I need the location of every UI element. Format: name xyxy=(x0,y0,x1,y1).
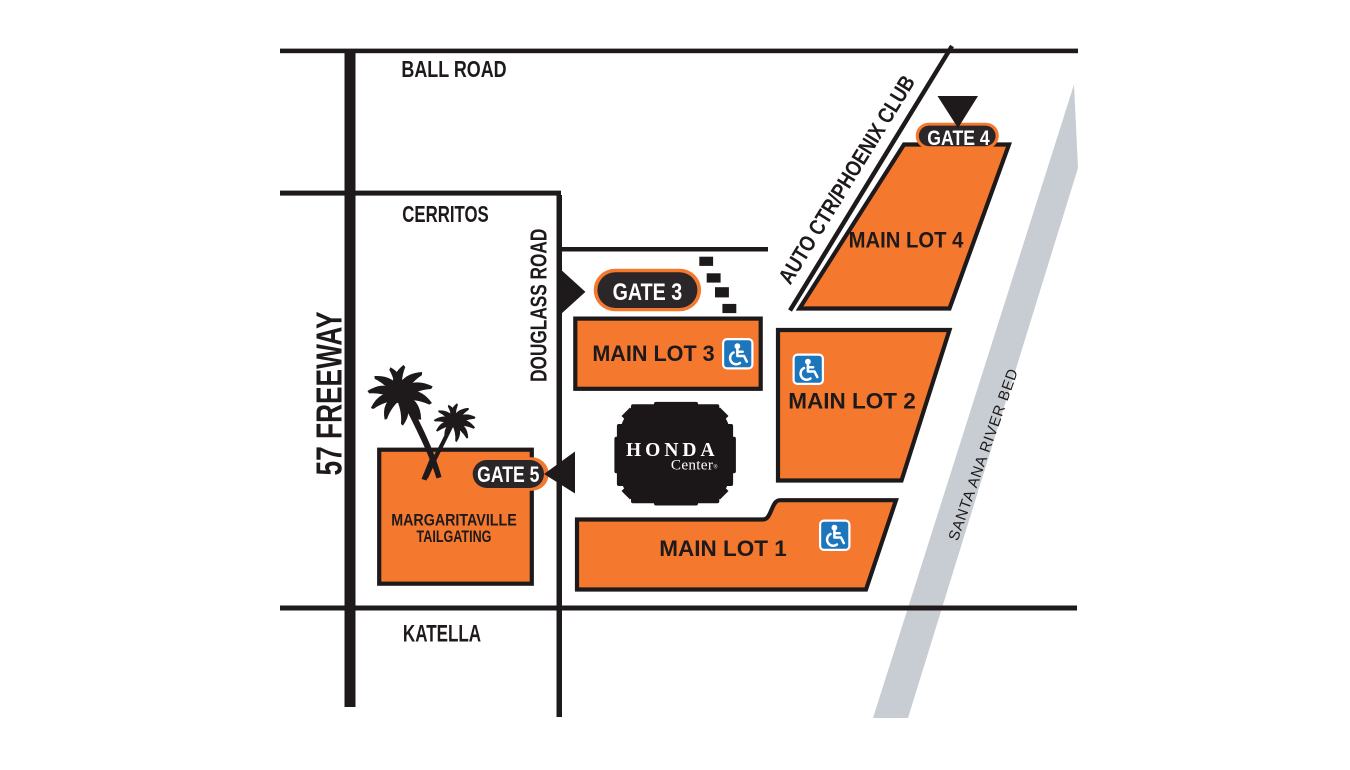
svg-text:TAILGATING: TAILGATING xyxy=(417,527,492,546)
svg-text:GATE 5: GATE 5 xyxy=(477,463,539,487)
svg-text:BALL ROAD: BALL ROAD xyxy=(401,57,506,83)
svg-text:GATE 4: GATE 4 xyxy=(927,127,990,151)
svg-text:KATELLA: KATELLA xyxy=(403,621,481,648)
svg-text:MAIN LOT 1: MAIN LOT 1 xyxy=(659,536,787,561)
svg-text:57 FREEWAY: 57 FREEWAY xyxy=(308,312,349,476)
svg-text:MAIN LOT 4: MAIN LOT 4 xyxy=(849,228,964,253)
svg-text:DOUGLASS ROAD: DOUGLASS ROAD xyxy=(527,229,552,382)
svg-text:GATE 3: GATE 3 xyxy=(613,278,683,305)
svg-text:CERRITOS: CERRITOS xyxy=(402,203,488,228)
svg-text:MAIN LOT 2: MAIN LOT 2 xyxy=(788,389,916,414)
svg-text:Center®: Center® xyxy=(671,456,718,473)
svg-text:MAIN LOT 3: MAIN LOT 3 xyxy=(592,341,714,367)
